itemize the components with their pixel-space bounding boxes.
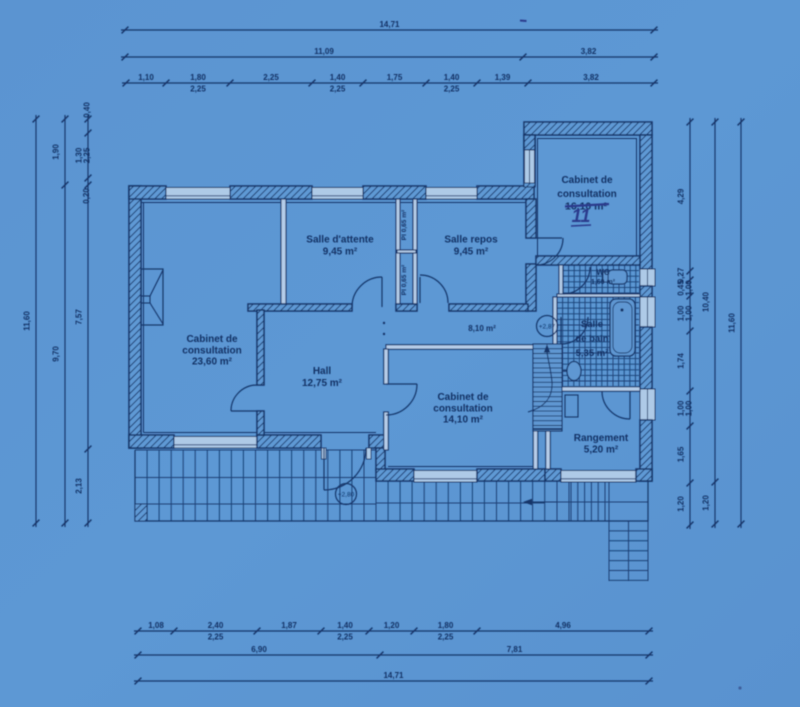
svg-text:6,90: 6,90 bbox=[251, 645, 267, 654]
svg-text:2,25: 2,25 bbox=[337, 633, 353, 642]
svg-text:4,29: 4,29 bbox=[677, 188, 686, 204]
svg-text:11,60: 11,60 bbox=[728, 313, 737, 333]
svg-text:Cabinet de: Cabinet de bbox=[437, 392, 489, 403]
svg-text:4,96: 4,96 bbox=[555, 621, 571, 630]
svg-text:9,70: 9,70 bbox=[52, 346, 61, 362]
svg-text:1,60 m²: 1,60 m² bbox=[591, 279, 616, 286]
svg-text:Pl 0,65 m²: Pl 0,65 m² bbox=[401, 264, 408, 295]
svg-text:10,40: 10,40 bbox=[702, 291, 711, 312]
svg-text:1,40: 1,40 bbox=[444, 73, 460, 82]
svg-text:Salle d'attente: Salle d'attente bbox=[306, 235, 374, 246]
svg-text:14,71: 14,71 bbox=[379, 20, 400, 29]
svg-text:11,60: 11,60 bbox=[23, 311, 32, 331]
svg-text:2,13: 2,13 bbox=[75, 478, 84, 494]
svg-text:3,82: 3,82 bbox=[581, 47, 597, 56]
svg-text:1,80: 1,80 bbox=[438, 621, 454, 630]
svg-text:1,20: 1,20 bbox=[384, 621, 400, 630]
svg-text:2,25: 2,25 bbox=[263, 73, 279, 82]
svg-text:Cabinet de: Cabinet de bbox=[186, 334, 238, 345]
svg-text:1,90: 1,90 bbox=[52, 144, 61, 160]
svg-text:1,87: 1,87 bbox=[281, 621, 297, 630]
svg-text:+2,80: +2,80 bbox=[338, 492, 355, 499]
svg-text:consultation: consultation bbox=[557, 189, 616, 200]
svg-text:14,10 m²: 14,10 m² bbox=[443, 415, 484, 426]
svg-text:2,25: 2,25 bbox=[444, 85, 460, 94]
svg-text:Pl 0,65 m²: Pl 0,65 m² bbox=[401, 209, 408, 240]
svg-text:11: 11 bbox=[572, 206, 591, 226]
svg-text:3,82: 3,82 bbox=[583, 73, 599, 82]
svg-text:2,25: 2,25 bbox=[330, 85, 346, 94]
svg-text:1,65: 1,65 bbox=[677, 446, 686, 462]
svg-text:consultation: consultation bbox=[182, 345, 241, 356]
svg-text:1,08: 1,08 bbox=[148, 621, 164, 630]
svg-text:12,75 m²: 12,75 m² bbox=[302, 378, 343, 389]
svg-text:WC: WC bbox=[596, 268, 610, 277]
svg-text:1,00: 1,00 bbox=[685, 305, 694, 321]
svg-text:9,45 m²: 9,45 m² bbox=[323, 247, 358, 258]
svg-text:1,20: 1,20 bbox=[677, 496, 686, 512]
svg-text:Hall: Hall bbox=[313, 366, 332, 377]
svg-text:5,20 m²: 5,20 m² bbox=[584, 445, 619, 456]
svg-text:14,71: 14,71 bbox=[383, 671, 404, 680]
svg-text:11,09: 11,09 bbox=[314, 47, 334, 56]
svg-text:+2,87: +2,87 bbox=[539, 324, 556, 331]
svg-text:1,20: 1,20 bbox=[702, 495, 711, 511]
svg-text:2,25: 2,25 bbox=[190, 85, 206, 94]
svg-text:1,40: 1,40 bbox=[330, 73, 346, 82]
svg-text:0,40: 0,40 bbox=[83, 102, 92, 118]
svg-text:Cabinet de: Cabinet de bbox=[561, 175, 613, 186]
svg-text:2,40: 2,40 bbox=[208, 621, 224, 630]
svg-text:2,25: 2,25 bbox=[438, 633, 454, 642]
svg-text:7,57: 7,57 bbox=[75, 309, 84, 325]
svg-text:7,81: 7,81 bbox=[507, 645, 523, 654]
svg-text:5,35 m²: 5,35 m² bbox=[576, 348, 609, 359]
svg-text:Salle: Salle bbox=[581, 319, 603, 330]
svg-text:2,25: 2,25 bbox=[83, 147, 92, 163]
svg-text:2,25: 2,25 bbox=[208, 633, 224, 642]
svg-text:1,40: 1,40 bbox=[337, 621, 353, 630]
svg-text:1,10: 1,10 bbox=[138, 73, 154, 82]
svg-text:Salle repos: Salle repos bbox=[444, 235, 498, 246]
svg-text:1,80: 1,80 bbox=[190, 73, 206, 82]
svg-text:1,39: 1,39 bbox=[495, 73, 511, 82]
svg-text:8,10 m²: 8,10 m² bbox=[468, 324, 496, 333]
svg-text:0,20: 0,20 bbox=[82, 188, 91, 204]
svg-text:1,00: 1,00 bbox=[685, 400, 694, 416]
svg-text:de bain: de bain bbox=[575, 334, 608, 345]
svg-text:1,00: 1,00 bbox=[685, 280, 694, 296]
svg-text:consultation: consultation bbox=[433, 403, 492, 414]
svg-text:9,45 m²: 9,45 m² bbox=[454, 247, 489, 258]
svg-text:1,75: 1,75 bbox=[387, 73, 403, 82]
svg-text:Rangement: Rangement bbox=[574, 433, 629, 444]
svg-text:23,60 m²: 23,60 m² bbox=[192, 357, 233, 368]
svg-text:1,74: 1,74 bbox=[677, 353, 686, 369]
